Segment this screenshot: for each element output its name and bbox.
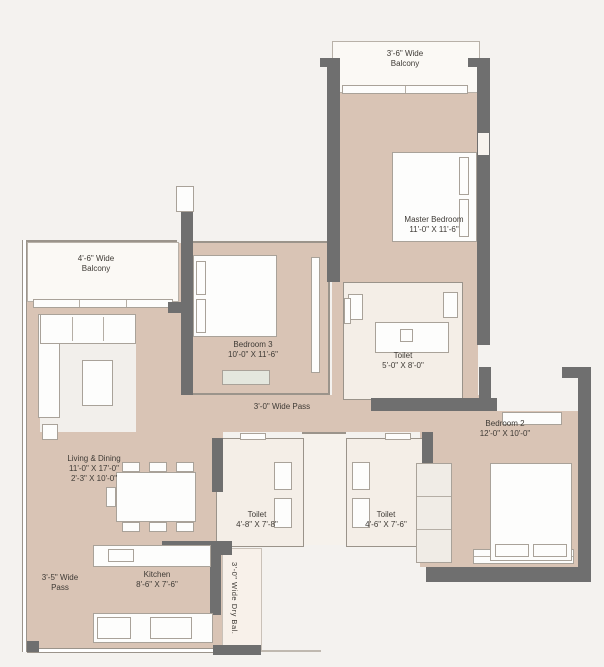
- bedroom3-dims: 10'-0" X 11'-6": [194, 350, 312, 360]
- toilet-left-label: Toilet 4'-8" X 7'-8": [213, 510, 301, 530]
- toilet-right-basin: [352, 462, 370, 490]
- master-toilet-counter-handle: [400, 329, 413, 342]
- bedroom3-bed-pillow: [196, 261, 206, 295]
- floor-plan: 3'-6" Wide Balcony Master Bedroom 11'-0"…: [0, 0, 604, 667]
- living-dining-dims1: 11'-0" X 17'-0": [36, 464, 152, 474]
- dining-chair: [176, 522, 194, 532]
- kitchen-dims: 8'-6" X 7'-6": [108, 580, 206, 590]
- living-dining-dims2: 2'-3" X 10'-0": [36, 474, 152, 484]
- living-balcony-label-line2: Balcony: [48, 264, 144, 274]
- master-toilet-label: Toilet 5'-0" X 8'-0": [360, 351, 446, 371]
- wall-toilet-left-side: [212, 438, 223, 492]
- living-balcony-label-line1: 4'-6" Wide: [48, 254, 144, 264]
- master-balcony-label-line2: Balcony: [345, 59, 465, 69]
- pass-left-label: 3'-5" Wide Pass: [22, 573, 98, 593]
- dining-chair: [149, 522, 167, 532]
- common-toilet-left-room: [216, 438, 304, 547]
- living-dining-label: Living & Dining 11'-0" X 17'-0" 2'-3" X …: [36, 454, 152, 484]
- kitchen-hob: [150, 617, 192, 639]
- wall-bedroom2-entry: [479, 367, 491, 411]
- entry-lobby-floor: [302, 434, 346, 545]
- master-bedroom-dims: 11'-0" X 11'-6": [372, 225, 496, 235]
- balcony-left-top-wall: [27, 240, 177, 242]
- toilet-left-name: Toilet: [213, 510, 301, 520]
- master-toilet-door: [344, 298, 351, 324]
- bedroom3-top-wall: [193, 241, 330, 243]
- toilet-right-door: [385, 433, 411, 440]
- bedroom3-wardrobe: [311, 257, 320, 373]
- wall-bedroom3-left: [181, 211, 193, 395]
- bedroom2-bed-pillow: [495, 544, 529, 557]
- bedroom2-bed: [490, 463, 572, 561]
- master-balcony-slider-window: [342, 85, 468, 94]
- living-balcony-slider-window: [33, 299, 173, 308]
- sofa-top: [40, 314, 136, 344]
- bedroom3-bed-pillow: [196, 299, 206, 333]
- lobby-top-line: [302, 432, 346, 434]
- kitchen-appliance: [97, 617, 131, 639]
- common-toilet-right-room: [346, 438, 424, 547]
- window-master-right-wall: [478, 133, 489, 155]
- pass-left-label-line2: Pass: [22, 583, 98, 593]
- bedroom3-name: Bedroom 3: [194, 340, 312, 350]
- master-toilet-dims: 5'-0" X 8'-0": [360, 361, 446, 371]
- toilet-left-dims: 4'-8" X 7'-8": [213, 520, 301, 530]
- toilet-right-dims: 4'-6" X 7'-6": [344, 520, 428, 530]
- kitchen-bottom-outer-wall: [27, 648, 213, 653]
- bedroom2-label: Bedroom 2 12'-0" X 10'-0": [443, 419, 567, 439]
- master-bedroom-label: Master Bedroom 11'-0" X 11'-6": [372, 215, 496, 235]
- kitchen-label: Kitchen 8'-6" X 7'-6": [108, 570, 206, 590]
- toilet-left-door: [240, 433, 266, 440]
- dining-chair: [176, 462, 194, 472]
- wall-corner-bottom-left: [27, 641, 39, 652]
- wall-bedroom2-right-cap: [562, 367, 591, 378]
- wall-kitchen-right: [210, 555, 221, 615]
- bedroom3-dresser: [222, 370, 270, 385]
- kitchen-counter-bottom: [93, 613, 213, 643]
- wall-stub-living: [168, 302, 182, 313]
- master-bedroom-name: Master Bedroom: [372, 215, 496, 225]
- wall-balcony-right-cap: [468, 58, 490, 67]
- toilet-right-label: Toilet 4'-6" X 7'-6": [344, 510, 428, 530]
- master-balcony-label: 3'-6" Wide Balcony: [345, 49, 465, 69]
- living-dining-name: Living & Dining: [36, 454, 152, 464]
- bedroom2-name: Bedroom 2: [443, 419, 567, 429]
- master-toilet-name: Toilet: [360, 351, 446, 361]
- bedroom3-bed: [193, 255, 277, 337]
- dry-balcony-label: 3'-0" Wide Dry Bal.: [230, 552, 239, 644]
- wall-master-left: [327, 58, 340, 282]
- wall-bedroom2-right: [578, 367, 591, 568]
- bedroom2-dims: 12'-0" X 10'-0": [443, 429, 567, 439]
- bedroom3-label: Bedroom 3 10'-0" X 11'-6": [194, 340, 312, 360]
- bedroom2-bed-pillow: [533, 544, 567, 557]
- wall-balcony-left-cap: [320, 58, 340, 67]
- master-balcony-label-line1: 3'-6" Wide: [345, 49, 465, 59]
- dining-chair: [122, 522, 140, 532]
- dining-chair: [106, 487, 116, 507]
- wall-bedroom2-bottom: [426, 567, 591, 582]
- kitchen-sink: [108, 549, 134, 562]
- living-balcony-label: 4'-6" Wide Balcony: [48, 254, 144, 274]
- kitchen-counter-top: [93, 545, 211, 567]
- master-bed-pillow: [459, 157, 469, 195]
- pillar-top-left: [176, 186, 194, 212]
- coffee-table: [82, 360, 113, 406]
- center-pass-label: 3'-0" Wide Pass: [226, 402, 338, 412]
- kitchen-name: Kitchen: [108, 570, 206, 580]
- pass-left-label-line1: 3'-5" Wide: [22, 573, 98, 583]
- master-toilet-counter: [375, 322, 449, 353]
- wall-dry-balcony-bottom: [213, 645, 261, 655]
- plinth-line-bottom: [261, 650, 321, 652]
- toilet-right-name: Toilet: [344, 510, 428, 520]
- toilet-left-basin: [274, 462, 292, 490]
- pouf: [42, 424, 58, 440]
- master-toilet-wc: [443, 292, 458, 318]
- dry-balcony-floor: [222, 548, 262, 650]
- bedroom3-bottom-wall: [193, 393, 330, 395]
